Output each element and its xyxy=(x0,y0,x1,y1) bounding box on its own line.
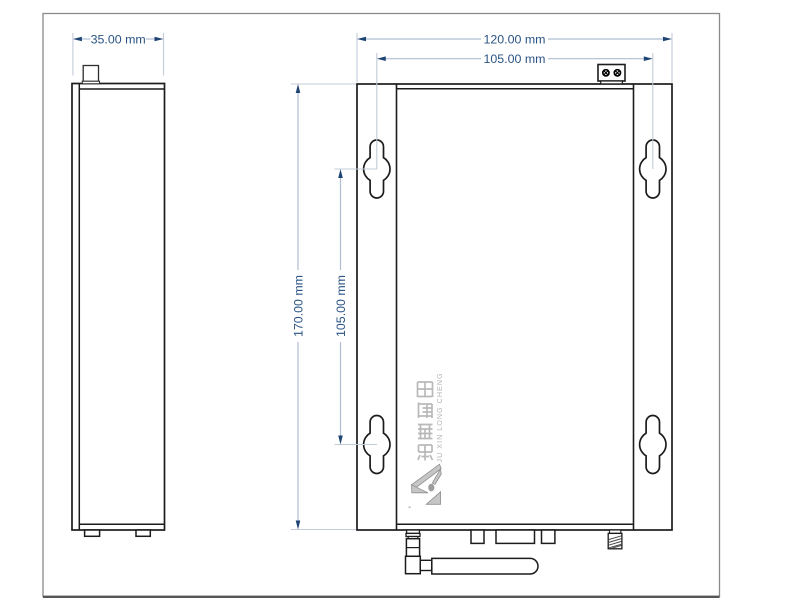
svg-text:JU XIN LONG CHENG: JU XIN LONG CHENG xyxy=(435,372,444,462)
svg-text:170.00 mm: 170.00 mm xyxy=(291,275,305,337)
svg-text:105.00 mm: 105.00 mm xyxy=(484,52,546,66)
svg-text:120.00 mm: 120.00 mm xyxy=(484,32,546,46)
svg-text:35.00 mm: 35.00 mm xyxy=(91,32,146,46)
svg-text:105.00 mm: 105.00 mm xyxy=(334,275,348,337)
